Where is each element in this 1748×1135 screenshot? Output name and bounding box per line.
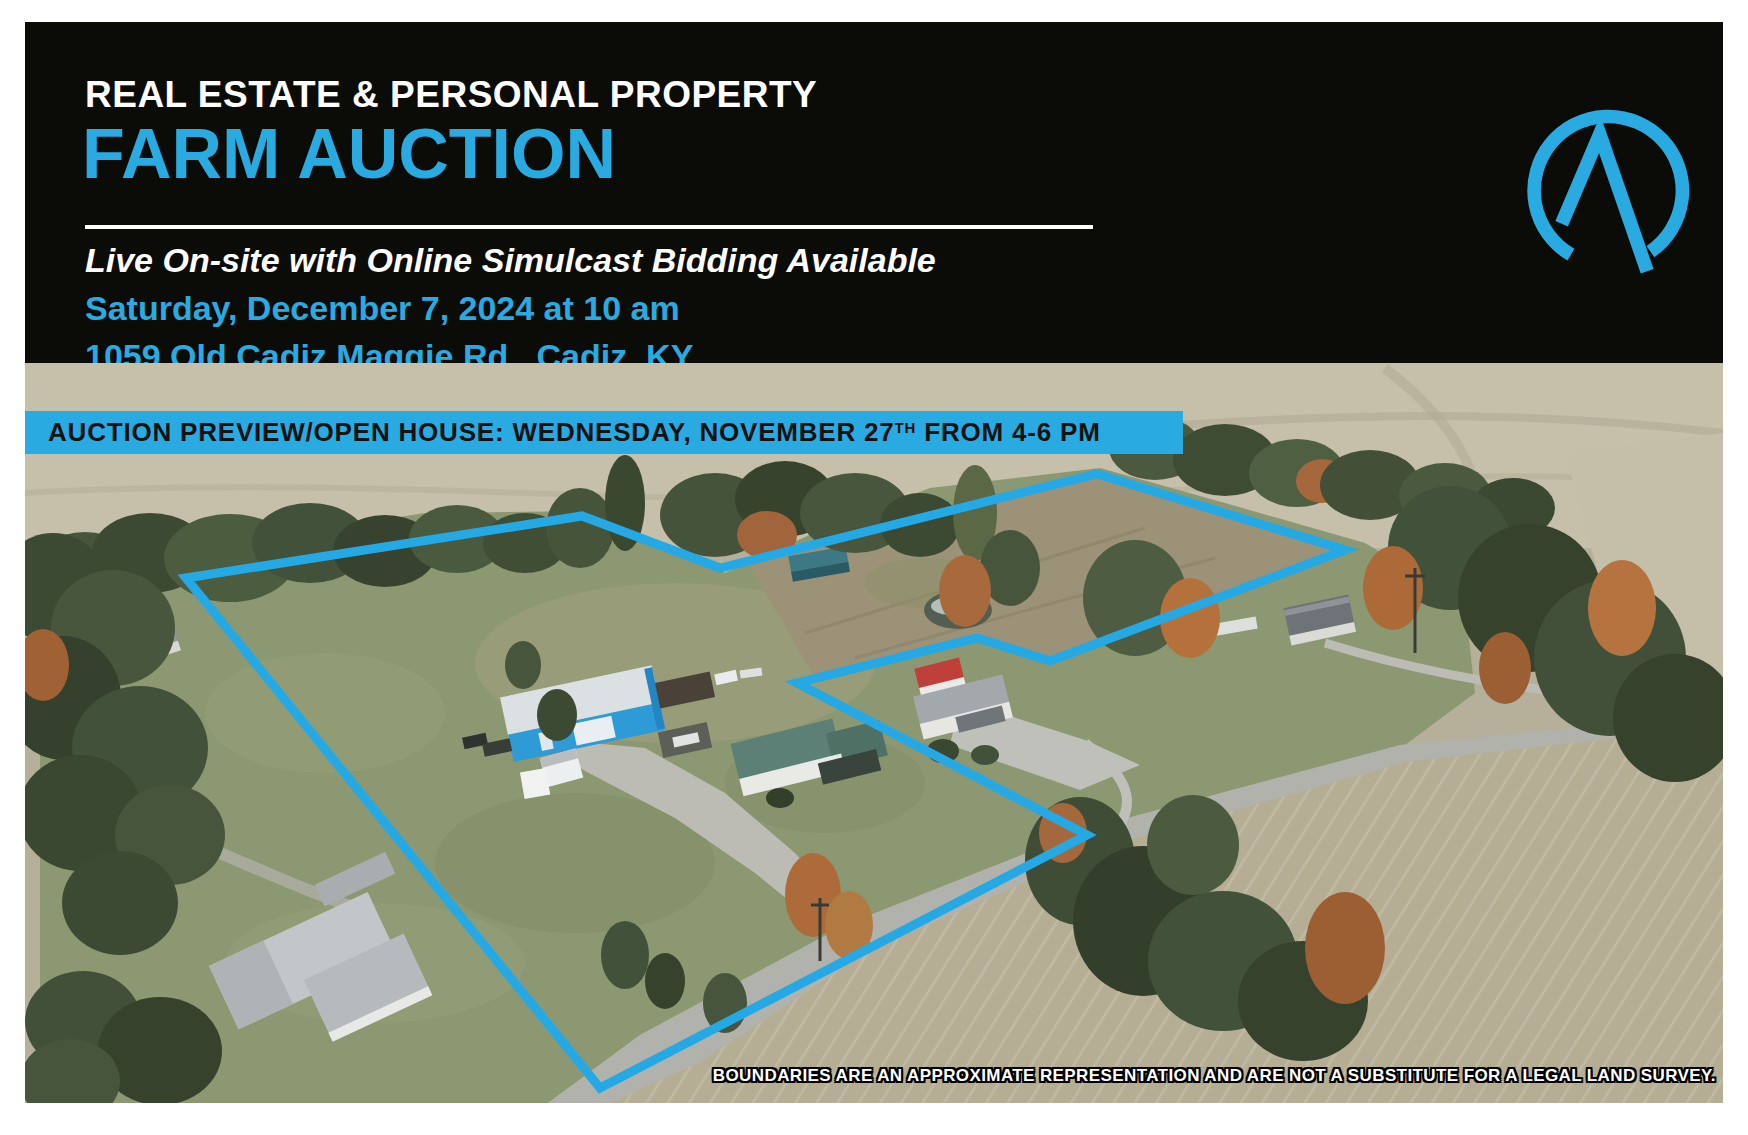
preview-banner-text: AUCTION PREVIEW/OPEN HOUSE: WEDNESDAY, N… [48,417,1101,448]
banner-text-main: AUCTION PREVIEW/OPEN HOUSE: WEDNESDAY, N… [48,417,895,447]
auction-datetime: Saturday, December 7, 2024 at 10 am [85,289,680,328]
header-divider [85,225,1093,229]
header-panel: REAL ESTATE & PERSONAL PROPERTY FARM AUC… [25,22,1723,363]
preview-banner: AUCTION PREVIEW/OPEN HOUSE: WEDNESDAY, N… [25,411,1183,454]
header-eyebrow: REAL ESTATE & PERSONAL PROPERTY [85,74,817,116]
page-title: FARM AUCTION [82,114,616,194]
aerial-photo-scene [25,363,1723,1103]
aerial-photo [25,363,1723,1103]
auction-flyer: REAL ESTATE & PERSONAL PROPERTY FARM AUC… [0,0,1748,1135]
banner-text-tail: FROM 4-6 PM [916,417,1100,447]
boundary-disclaimer: BOUNDARIES ARE AN APPROXIMATE REPRESENTA… [713,1066,1716,1086]
header-tagline: Live On-site with Online Simulcast Biddi… [85,241,936,280]
auction-company-logo-icon [1505,94,1711,300]
banner-text-ordinal: TH [895,419,917,436]
